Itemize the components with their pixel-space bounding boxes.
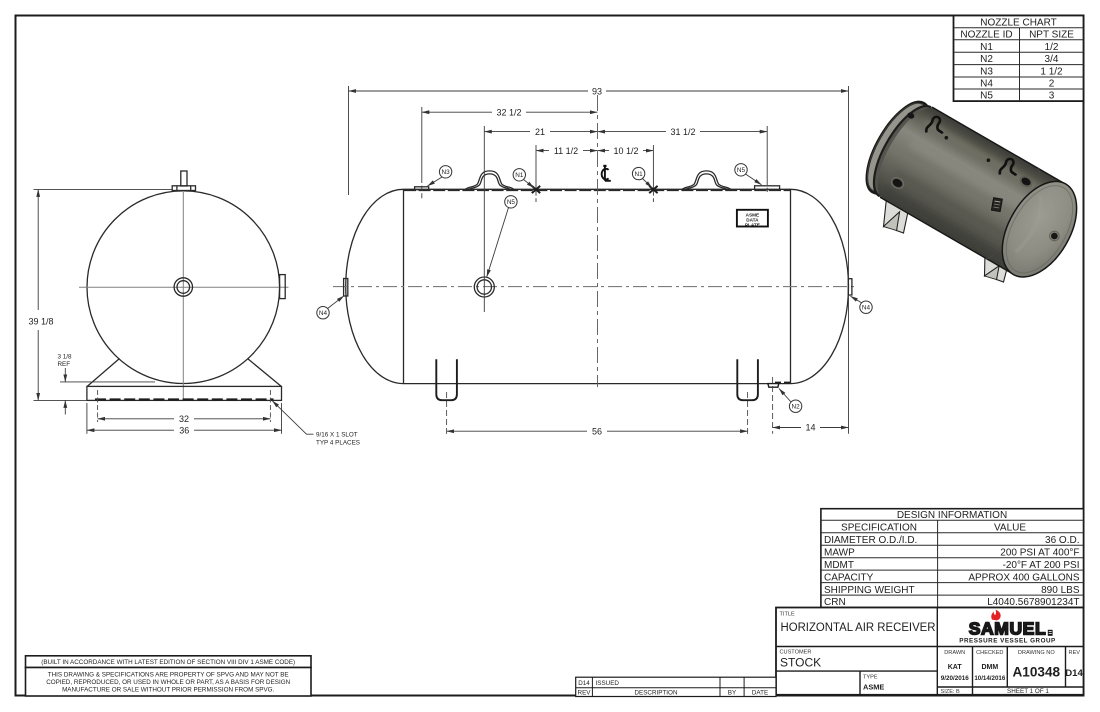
svg-text:11 1/2: 11 1/2 bbox=[554, 146, 578, 156]
svg-text:CAPACITY: CAPACITY bbox=[824, 572, 874, 583]
svg-text:32 1/2: 32 1/2 bbox=[496, 107, 521, 117]
svg-text:56: 56 bbox=[592, 426, 602, 436]
svg-text:N5: N5 bbox=[507, 199, 516, 206]
svg-text:REV: REV bbox=[578, 690, 592, 697]
svg-text:890 LBS: 890 LBS bbox=[1041, 585, 1080, 596]
svg-text:VALUE: VALUE bbox=[994, 522, 1026, 533]
svg-text:SIZE: B: SIZE: B bbox=[941, 689, 961, 695]
svg-text:3: 3 bbox=[1049, 91, 1055, 102]
svg-text:COPIED, REPRODUCED, OR USED IN: COPIED, REPRODUCED, OR USED IN WHOLE OR … bbox=[46, 679, 290, 686]
svg-text:D14: D14 bbox=[578, 680, 590, 687]
svg-text:N1: N1 bbox=[635, 171, 644, 178]
svg-text:NOZZLE ID: NOZZLE ID bbox=[960, 29, 1012, 40]
svg-text:36 O.D.: 36 O.D. bbox=[1045, 535, 1079, 546]
svg-text:10/14/2016: 10/14/2016 bbox=[974, 675, 1006, 682]
svg-text:SHIPPING WEIGHT: SHIPPING WEIGHT bbox=[824, 585, 915, 596]
svg-text:N5: N5 bbox=[980, 91, 993, 102]
svg-text:CHECKED: CHECKED bbox=[976, 650, 1003, 656]
svg-text:32: 32 bbox=[179, 414, 189, 424]
svg-text:9/20/2016: 9/20/2016 bbox=[941, 675, 970, 682]
svg-text:N3: N3 bbox=[980, 67, 993, 78]
svg-text:SHEET 1 OF 1: SHEET 1 OF 1 bbox=[1007, 688, 1049, 695]
svg-text:CRN: CRN bbox=[824, 597, 846, 608]
svg-text:DESIGN INFORMATION: DESIGN INFORMATION bbox=[897, 510, 1007, 521]
svg-text:-20°F AT 200 PSI: -20°F AT 200 PSI bbox=[1002, 560, 1079, 571]
svg-text:N4: N4 bbox=[862, 305, 871, 312]
svg-text:DATE: DATE bbox=[752, 690, 768, 697]
svg-text:ASME: ASME bbox=[863, 683, 884, 692]
svg-text:31 1/2: 31 1/2 bbox=[670, 127, 695, 137]
svg-text:HORIZONTAL AIR RECEIVER: HORIZONTAL AIR RECEIVER bbox=[781, 620, 936, 634]
svg-text:39 1/8: 39 1/8 bbox=[28, 317, 53, 327]
svg-text:APPROX 400 GALLONS: APPROX 400 GALLONS bbox=[968, 572, 1079, 583]
svg-text:1/2: 1/2 bbox=[1045, 42, 1059, 53]
svg-text:N1: N1 bbox=[980, 42, 993, 53]
svg-text:NOZZLE CHART: NOZZLE CHART bbox=[980, 17, 1057, 28]
svg-text:DMM: DMM bbox=[981, 664, 998, 671]
svg-text:THIS DRAWING & SPECIFICATIONS: THIS DRAWING & SPECIFICATIONS ARE PROPER… bbox=[48, 671, 289, 678]
svg-text:3/4: 3/4 bbox=[1045, 54, 1059, 65]
svg-text:DRAWN: DRAWN bbox=[944, 650, 965, 656]
svg-text:KAT: KAT bbox=[948, 664, 963, 671]
svg-text:2: 2 bbox=[1049, 79, 1055, 90]
svg-text:21: 21 bbox=[535, 127, 545, 137]
svg-text:36: 36 bbox=[179, 426, 189, 436]
svg-text:N4: N4 bbox=[980, 79, 993, 90]
svg-text:N3: N3 bbox=[442, 169, 451, 176]
svg-text:10 1/2: 10 1/2 bbox=[613, 146, 638, 156]
svg-text:PLATE: PLATE bbox=[745, 222, 760, 227]
svg-text:N2: N2 bbox=[980, 54, 993, 65]
svg-text:REV: REV bbox=[1069, 650, 1081, 656]
svg-text:L4040.5678901234T: L4040.5678901234T bbox=[987, 597, 1079, 608]
svg-text:TITLE: TITLE bbox=[780, 612, 795, 618]
svg-text:N2: N2 bbox=[792, 404, 801, 411]
svg-text:SPECIFICATION: SPECIFICATION bbox=[841, 522, 917, 533]
svg-text:NPT SIZE: NPT SIZE bbox=[1029, 29, 1074, 40]
svg-text:STOCK: STOCK bbox=[780, 656, 821, 670]
svg-text:MAWP: MAWP bbox=[824, 547, 855, 558]
svg-text:TYP 4 PLACES: TYP 4 PLACES bbox=[316, 440, 360, 447]
svg-text:MDMT: MDMT bbox=[824, 560, 854, 571]
svg-text:200 PSI AT 400°F: 200 PSI AT 400°F bbox=[1000, 547, 1079, 558]
svg-text:3 1/8: 3 1/8 bbox=[58, 354, 73, 361]
svg-text:(BUILT IN ACCORDANCE WITH LATE: (BUILT IN ACCORDANCE WITH LATEST EDITION… bbox=[41, 659, 295, 666]
svg-text:ISSUED: ISSUED bbox=[596, 680, 620, 687]
svg-text:TYPE: TYPE bbox=[863, 675, 878, 681]
svg-text:N4: N4 bbox=[319, 310, 328, 317]
svg-text:1 1/2: 1 1/2 bbox=[1040, 67, 1063, 78]
svg-text:DIAMETER O.D./I.D.: DIAMETER O.D./I.D. bbox=[824, 535, 917, 546]
svg-text:SAMUEL: SAMUEL bbox=[969, 619, 1047, 639]
svg-text:DESCRIPTION: DESCRIPTION bbox=[634, 690, 677, 697]
svg-text:MANUFACTURE OR SALE WITHOUT PR: MANUFACTURE OR SALE WITHOUT PRIOR PERMIS… bbox=[62, 687, 274, 694]
svg-text:N1: N1 bbox=[515, 172, 524, 179]
svg-text:D14: D14 bbox=[1065, 668, 1083, 679]
svg-text:PRESSURE VESSEL GROUP: PRESSURE VESSEL GROUP bbox=[959, 638, 1055, 645]
svg-text:N5: N5 bbox=[737, 167, 746, 174]
svg-text:BY: BY bbox=[728, 690, 737, 697]
svg-text:REF: REF bbox=[58, 361, 71, 368]
svg-text:93: 93 bbox=[592, 86, 602, 96]
svg-text:14: 14 bbox=[805, 423, 815, 433]
svg-text:DRAWING NO: DRAWING NO bbox=[1018, 650, 1055, 656]
svg-text:A10348: A10348 bbox=[1012, 665, 1060, 680]
svg-text:9/16 X 1 SLOT: 9/16 X 1 SLOT bbox=[316, 432, 358, 439]
